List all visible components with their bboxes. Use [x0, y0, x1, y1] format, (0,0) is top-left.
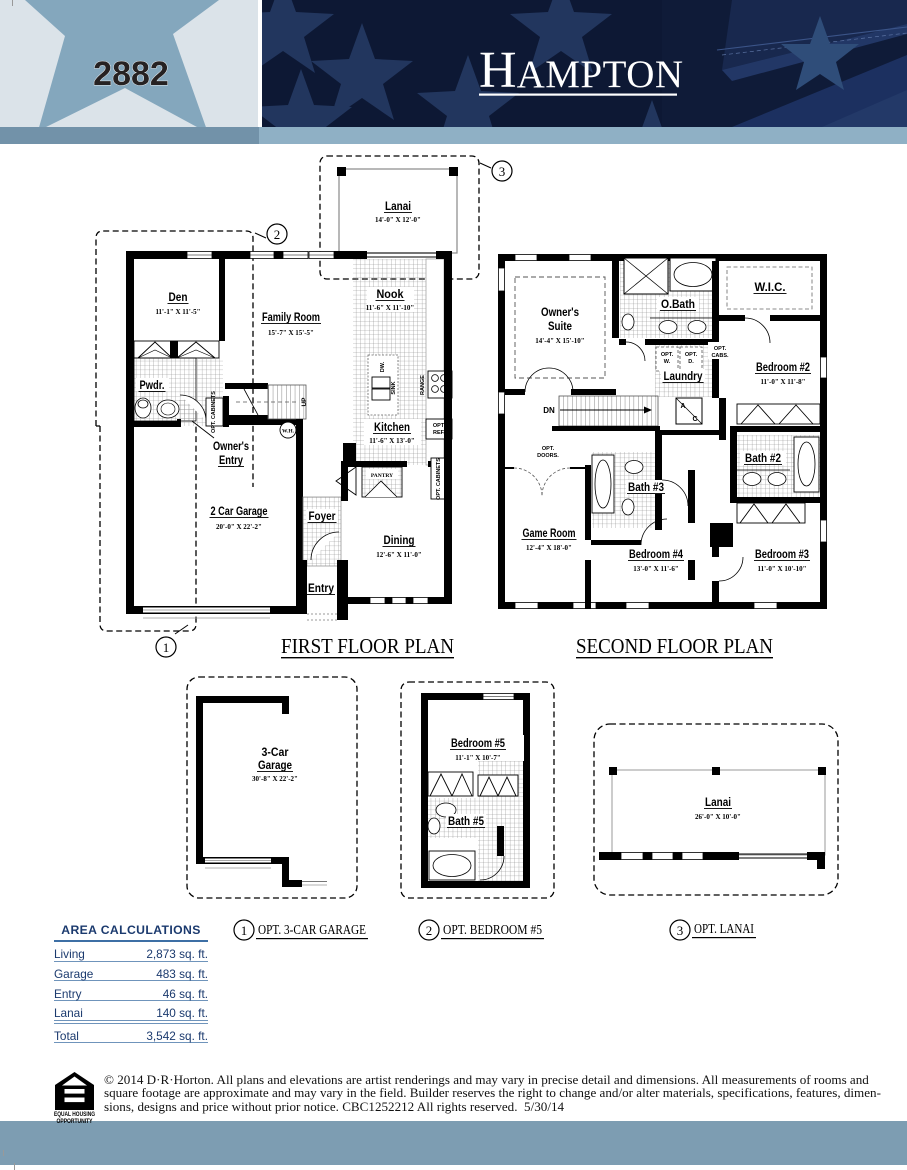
svg-text:O.Bath: O.Bath [661, 299, 695, 311]
svg-text:OPT.: OPT. [685, 352, 698, 358]
svg-text:1: 1 [241, 923, 248, 938]
svg-text:2: 2 [274, 227, 281, 242]
svg-text:PANTRY: PANTRY [371, 473, 393, 479]
svg-text:Den: Den [169, 292, 188, 304]
svg-text:OPT.: OPT. [542, 446, 555, 452]
svg-text:OPT.: OPT. [714, 346, 727, 352]
svg-text:OPT.: OPT. [433, 423, 446, 429]
svg-text:26'-0" X 10'-0": 26'-0" X 10'-0" [695, 813, 741, 821]
svg-text:Bedroom #5: Bedroom #5 [451, 738, 505, 750]
svg-text:W.I.C.: W.I.C. [755, 282, 786, 294]
svg-text:Lanai: Lanai [385, 201, 411, 213]
svg-text:REF.: REF. [433, 430, 445, 436]
svg-text:CABS.: CABS. [711, 353, 729, 359]
svg-text:12'-4" X 18'-0": 12'-4" X 18'-0" [526, 544, 572, 552]
svg-text:13'-0" X 11'-6": 13'-0" X 11'-6" [633, 565, 679, 573]
svg-text:Family Room: Family Room [262, 312, 320, 324]
svg-text:SINK: SINK [391, 381, 397, 394]
svg-text:Game Room: Game Room [523, 528, 576, 540]
svg-text:30'-8" X 22'-2": 30'-8" X 22'-2" [252, 775, 298, 783]
svg-text:20'-0" X 22'-2": 20'-0" X 22'-2" [216, 523, 262, 531]
svg-text:3-Car: 3-Car [262, 747, 289, 759]
svg-text:DW.: DW. [380, 361, 386, 372]
svg-text:OPT. CABINETS: OPT. CABINETS [211, 391, 217, 433]
svg-text:Pwdr.: Pwdr. [140, 380, 165, 392]
svg-text:Bath #3: Bath #3 [628, 482, 664, 494]
svg-text:1: 1 [163, 640, 170, 655]
svg-text:OPT. 3-CAR GARAGE: OPT. 3-CAR GARAGE [258, 923, 366, 938]
svg-text:OPT. CABINETS: OPT. CABINETS [436, 458, 442, 500]
svg-text:Bath #5: Bath #5 [448, 816, 485, 828]
svg-text:OPT. BEDROOM #5: OPT. BEDROOM #5 [443, 923, 542, 938]
svg-text:11'-6" X 11'-10": 11'-6" X 11'-10" [366, 304, 415, 312]
svg-text:UP: UP [301, 397, 308, 407]
svg-text:D.: D. [688, 359, 694, 365]
svg-text:OPT. LANAI: OPT. LANAI [694, 922, 754, 937]
svg-text:12'-6" X 11'-0": 12'-6" X 11'-0" [376, 551, 422, 559]
svg-text:2 Car Garage: 2 Car Garage [211, 504, 268, 518]
svg-text:Nook: Nook [377, 289, 405, 301]
svg-text:11'-6" X 13'-0": 11'-6" X 13'-0" [369, 437, 415, 445]
svg-text:A: A [680, 403, 685, 410]
svg-text:Kitchen: Kitchen [374, 420, 410, 434]
svg-text:Entry: Entry [308, 583, 335, 595]
svg-text:Lanai: Lanai [705, 797, 731, 809]
svg-text:14'-4" X 15'-10": 14'-4" X 15'-10" [535, 337, 584, 345]
svg-text:Garage: Garage [258, 760, 292, 772]
svg-text:Owner's: Owner's [213, 441, 249, 453]
svg-text:2: 2 [426, 923, 433, 938]
svg-text:SECOND FLOOR PLAN: SECOND FLOOR PLAN [576, 634, 773, 658]
svg-text:Bath #2: Bath #2 [745, 453, 781, 465]
svg-text:OPPORTUNITY: OPPORTUNITY [57, 1119, 93, 1125]
svg-text:Laundry: Laundry [664, 371, 704, 383]
svg-text:Bedroom #2: Bedroom #2 [756, 362, 810, 374]
svg-text:14'-0" X 12'-0": 14'-0" X 12'-0" [375, 216, 421, 224]
svg-text:Bedroom #3: Bedroom #3 [755, 549, 809, 561]
svg-text:W.H.: W.H. [282, 429, 295, 435]
svg-text:DOORS.: DOORS. [537, 453, 559, 459]
svg-text:Dining: Dining [384, 535, 415, 547]
svg-text:Entry: Entry [219, 455, 243, 467]
svg-text:15'-7" X 15'-5": 15'-7" X 15'-5" [268, 329, 314, 337]
svg-text:OPT.: OPT. [661, 352, 674, 358]
svg-text:FIRST FLOOR PLAN: FIRST FLOOR PLAN [281, 634, 454, 658]
svg-text:3: 3 [677, 923, 684, 938]
svg-text:RANGE: RANGE [420, 375, 426, 395]
svg-text:11'-0" X 10'-10": 11'-0" X 10'-10" [758, 565, 807, 573]
svg-text:11'-1" X 11'-5": 11'-1" X 11'-5" [155, 308, 200, 316]
svg-text:Foyer: Foyer [309, 511, 336, 523]
svg-text:W.: W. [664, 359, 671, 365]
svg-text:EQUAL HOUSING: EQUAL HOUSING [54, 1112, 95, 1118]
svg-text:DN: DN [543, 406, 555, 415]
svg-text:11'-0" X 11'-8": 11'-0" X 11'-8" [760, 378, 805, 386]
svg-text:Bedroom #4: Bedroom #4 [629, 549, 683, 561]
svg-text:Owner's: Owner's [541, 307, 579, 319]
svg-text:Suite: Suite [548, 321, 572, 333]
svg-text:3: 3 [499, 164, 506, 179]
svg-text:11'-1" X 10'-7": 11'-1" X 10'-7" [455, 754, 501, 762]
svg-text:C: C [692, 416, 697, 423]
